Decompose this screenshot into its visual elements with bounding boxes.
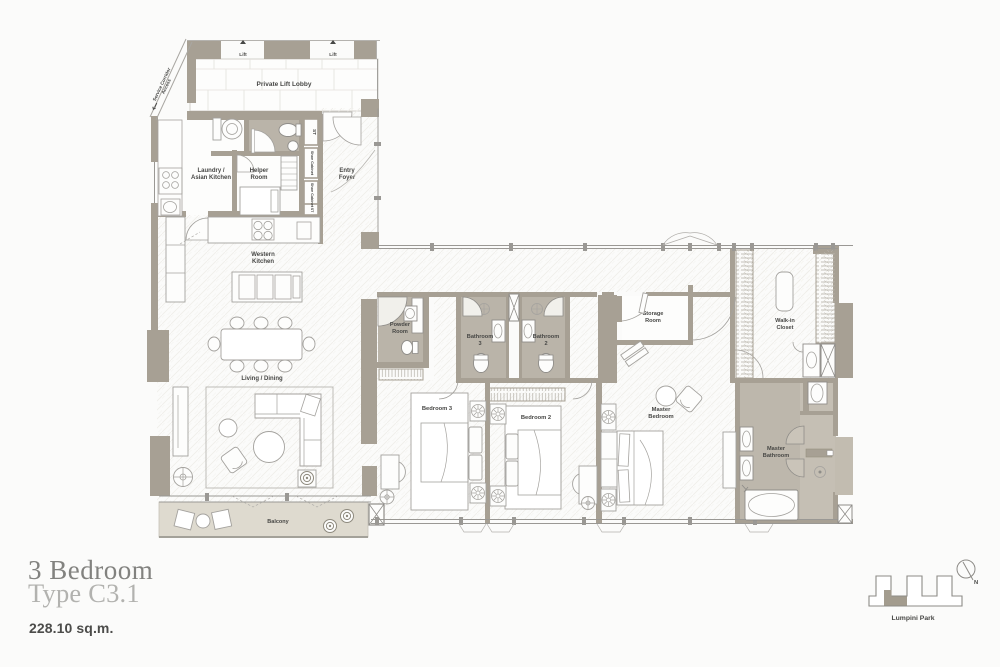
svg-text:Living / Dining: Living / Dining [241, 376, 283, 382]
svg-text:228.10 sq.m.: 228.10 sq.m. [29, 620, 113, 636]
svg-text:Laundry /: Laundry / [197, 168, 224, 174]
svg-text:Private Lift Lobby: Private Lift Lobby [257, 81, 312, 88]
svg-text:Western: Western [251, 252, 275, 258]
svg-text:Bedroom 2: Bedroom 2 [521, 415, 551, 421]
svg-text:Bathroom: Bathroom [467, 334, 493, 340]
svg-text:Master: Master [652, 407, 671, 413]
svg-text:3: 3 [478, 341, 481, 347]
svg-text:Balcony: Balcony [267, 519, 289, 525]
svg-text:Lift: Lift [239, 52, 247, 58]
svg-text:N: N [974, 580, 978, 586]
svg-text:2: 2 [544, 341, 547, 347]
svg-text:Closet: Closet [776, 325, 793, 331]
svg-text:Bathroom: Bathroom [763, 453, 789, 459]
svg-text:Walk-in: Walk-in [775, 318, 795, 324]
svg-text:Powder: Powder [390, 322, 411, 328]
svg-text:Lift: Lift [329, 52, 337, 58]
svg-text:Lumpini Park: Lumpini Park [891, 615, 934, 622]
svg-text:Storage: Storage [643, 311, 664, 317]
svg-text:Type C3.1: Type C3.1 [28, 578, 140, 608]
svg-text:Kitchen: Kitchen [252, 259, 274, 265]
svg-text:Helper: Helper [250, 168, 269, 174]
svg-text:Bathroom: Bathroom [533, 334, 559, 340]
svg-text:Asian Kitchen: Asian Kitchen [191, 175, 231, 181]
svg-text:Master: Master [767, 446, 786, 452]
svg-text:Room: Room [251, 175, 268, 181]
svg-text:Shoe Cabinet: Shoe Cabinet [310, 151, 314, 176]
svg-text:Room: Room [645, 318, 661, 324]
svg-text:Entry: Entry [339, 168, 355, 174]
svg-text:Shoe Cabinet: Shoe Cabinet [310, 183, 314, 208]
svg-text:Bedroom 3: Bedroom 3 [422, 406, 453, 412]
svg-text:Room: Room [392, 329, 408, 335]
svg-text:Bedroom: Bedroom [648, 414, 673, 420]
svg-text:ST: ST [312, 129, 317, 135]
svg-text:ST: ST [310, 208, 314, 213]
